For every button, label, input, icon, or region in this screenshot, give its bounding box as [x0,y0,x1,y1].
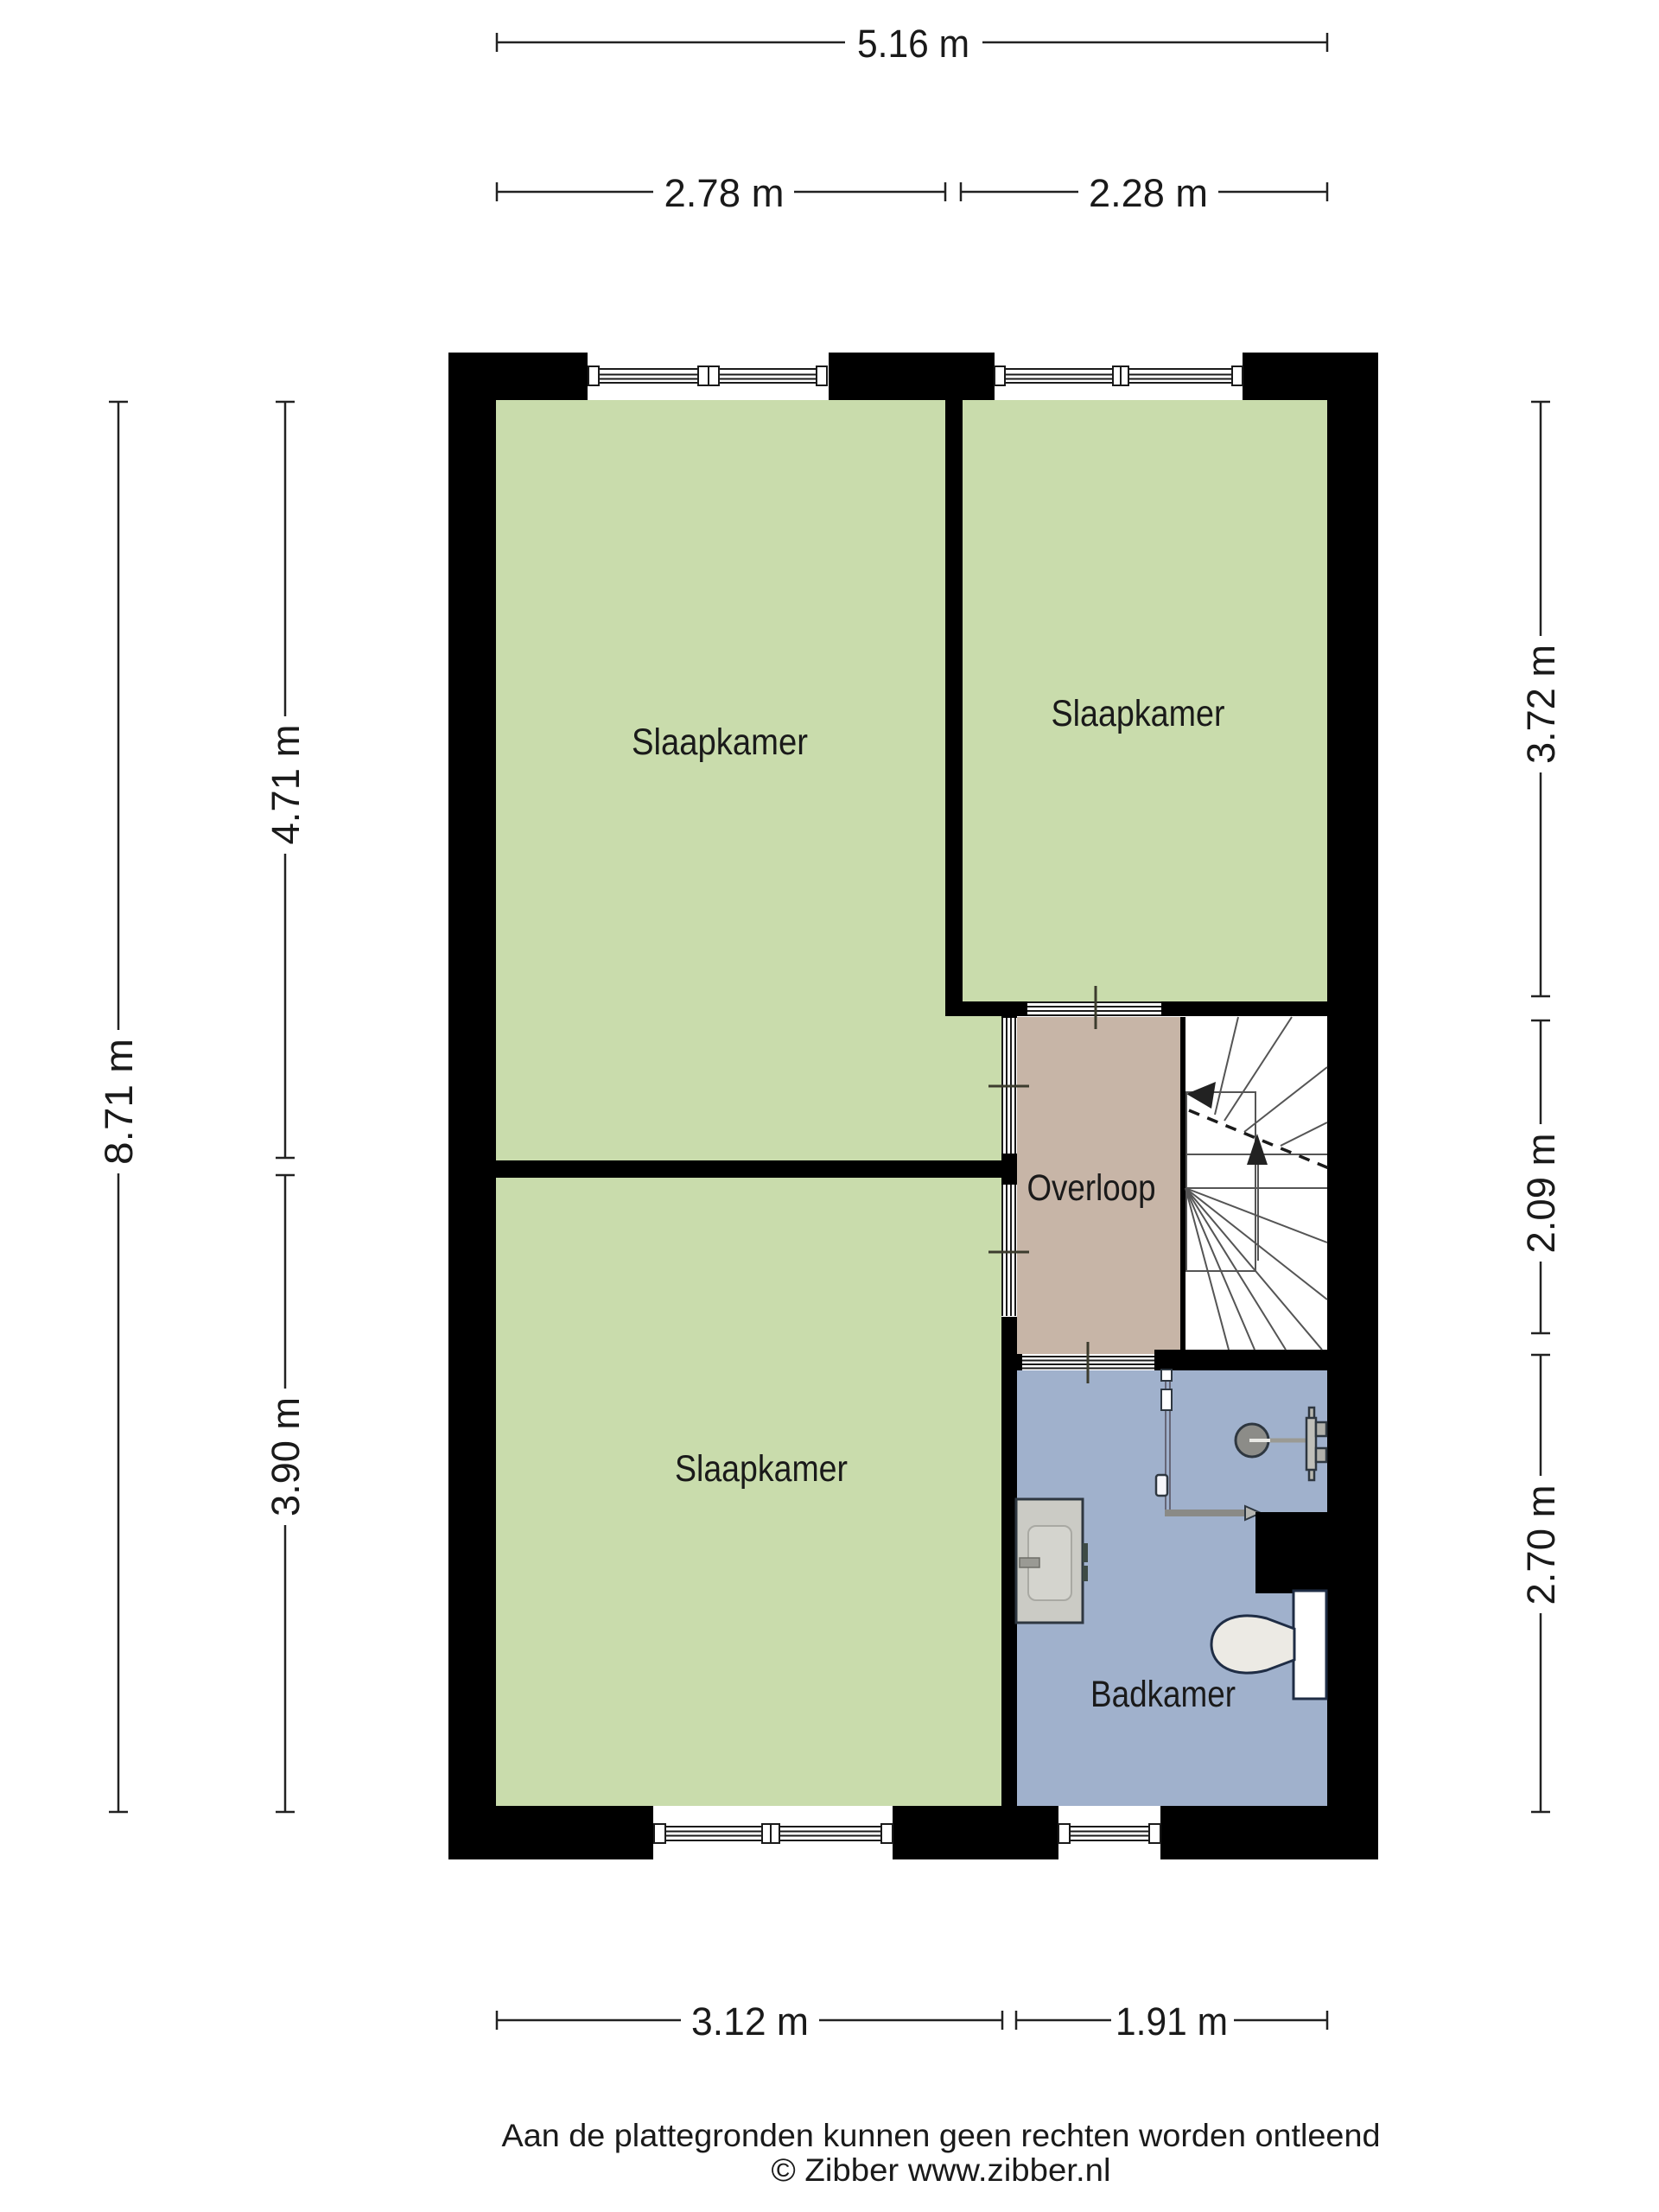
svg-text:Overloop: Overloop [1027,1167,1156,1209]
svg-text:1.91 m: 1.91 m [1116,1999,1228,2044]
svg-text:3.72 m: 3.72 m [1519,645,1563,764]
svg-text:3.90 m: 3.90 m [264,1397,308,1516]
svg-text:Slaapkamer: Slaapkamer [632,721,808,763]
svg-text:8.71 m: 8.71 m [97,1039,141,1165]
svg-text:Slaapkamer: Slaapkamer [1052,693,1225,734]
svg-text:4.71 m: 4.71 m [264,725,308,845]
svg-text:Badkamer: Badkamer [1090,1674,1236,1715]
svg-text:5.16 m: 5.16 m [857,22,969,66]
svg-text:2.28 m: 2.28 m [1089,171,1208,215]
svg-text:© Zibber www.zibber.nl: © Zibber www.zibber.nl [772,2152,1111,2188]
svg-text:2.09 m: 2.09 m [1519,1134,1563,1254]
svg-text:3.12 m: 3.12 m [691,1999,809,2044]
svg-text:Slaapkamer: Slaapkamer [675,1448,848,1490]
svg-text:2.78 m: 2.78 m [664,171,785,215]
svg-text:2.70 m: 2.70 m [1519,1485,1563,1605]
svg-text:Aan de plattegronden kunnen ge: Aan de plattegronden kunnen geen rechten… [502,2118,1381,2153]
